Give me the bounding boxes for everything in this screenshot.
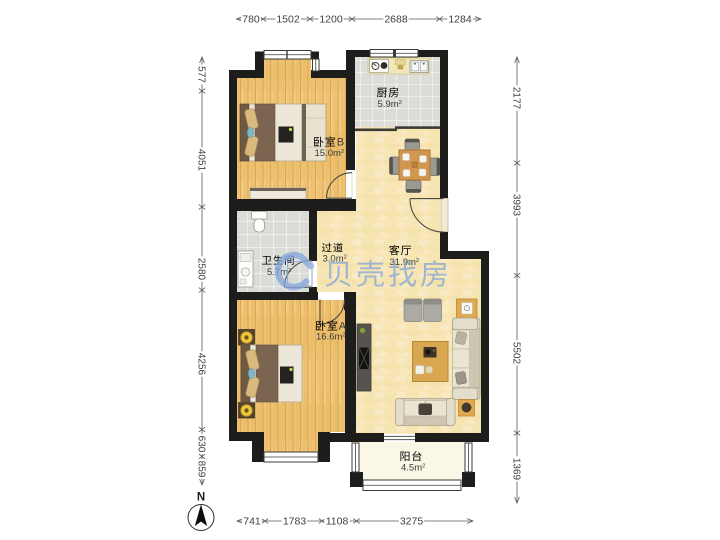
svg-text:4256: 4256	[196, 353, 207, 376]
svg-text:741: 741	[243, 516, 261, 528]
svg-text:3993: 3993	[511, 194, 522, 217]
svg-text:4051: 4051	[196, 149, 207, 172]
svg-text:2177: 2177	[511, 87, 522, 110]
svg-text:859: 859	[196, 461, 207, 478]
svg-text:780: 780	[242, 14, 260, 26]
svg-text:5502: 5502	[511, 342, 522, 365]
svg-text:1502: 1502	[276, 14, 300, 26]
svg-text:1284: 1284	[448, 14, 472, 26]
svg-text:3275: 3275	[400, 516, 424, 528]
svg-text:1783: 1783	[283, 516, 307, 528]
svg-text:5.9m2: 5.9m2	[378, 99, 402, 110]
svg-text:16.6m2: 16.6m2	[316, 331, 346, 342]
svg-text:2580: 2580	[196, 258, 207, 281]
svg-text:15.0m2: 15.0m2	[315, 148, 345, 159]
svg-text:1108: 1108	[326, 516, 349, 528]
svg-text:N: N	[197, 492, 205, 504]
svg-text:630: 630	[196, 436, 207, 453]
svg-text:1200: 1200	[319, 14, 343, 26]
svg-text:2688: 2688	[384, 14, 408, 26]
svg-text:B: B	[337, 136, 344, 148]
svg-text:4.5m2: 4.5m2	[401, 463, 425, 474]
svg-text:577: 577	[196, 66, 207, 83]
svg-text:1369: 1369	[511, 458, 522, 481]
